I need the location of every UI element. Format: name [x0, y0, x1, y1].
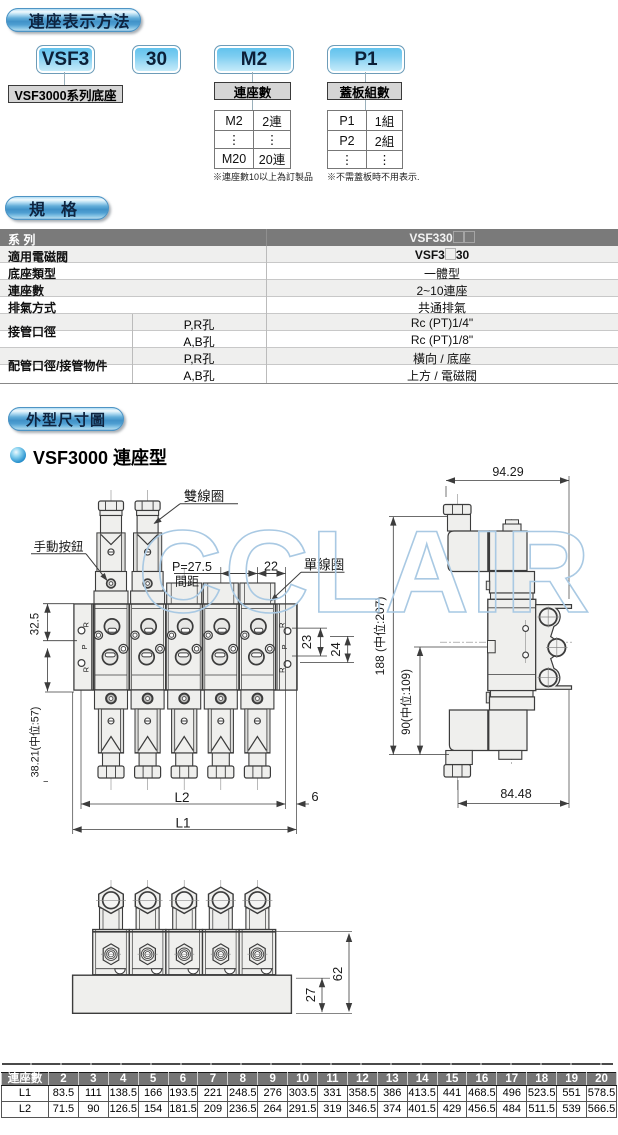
svg-text:32.5: 32.5 [30, 613, 42, 635]
svg-text:62: 62 [330, 967, 345, 981]
svg-text:94.29: 94.29 [492, 465, 523, 479]
svg-text:雙線圈: 雙線圈 [184, 489, 225, 504]
svg-text:R: R [82, 622, 91, 628]
svg-text:CCLAIR: CCLAIR [138, 506, 592, 637]
svg-text:38.21(中位:57): 38.21(中位:57) [28, 707, 42, 778]
svg-text:L1: L1 [175, 816, 190, 831]
svg-text:P: P [80, 644, 89, 649]
svg-text:手動按鈕: 手動按鈕 [33, 540, 84, 554]
svg-text:84.48: 84.48 [500, 787, 531, 801]
svg-text:27: 27 [303, 988, 318, 1002]
svg-text:6: 6 [311, 789, 318, 804]
svg-text:90(中位:109): 90(中位:109) [399, 669, 413, 735]
svg-text:L2: L2 [174, 790, 189, 805]
svg-text:P: P [280, 644, 289, 649]
svg-text:24: 24 [328, 642, 343, 656]
svg-text:R: R [82, 666, 91, 672]
